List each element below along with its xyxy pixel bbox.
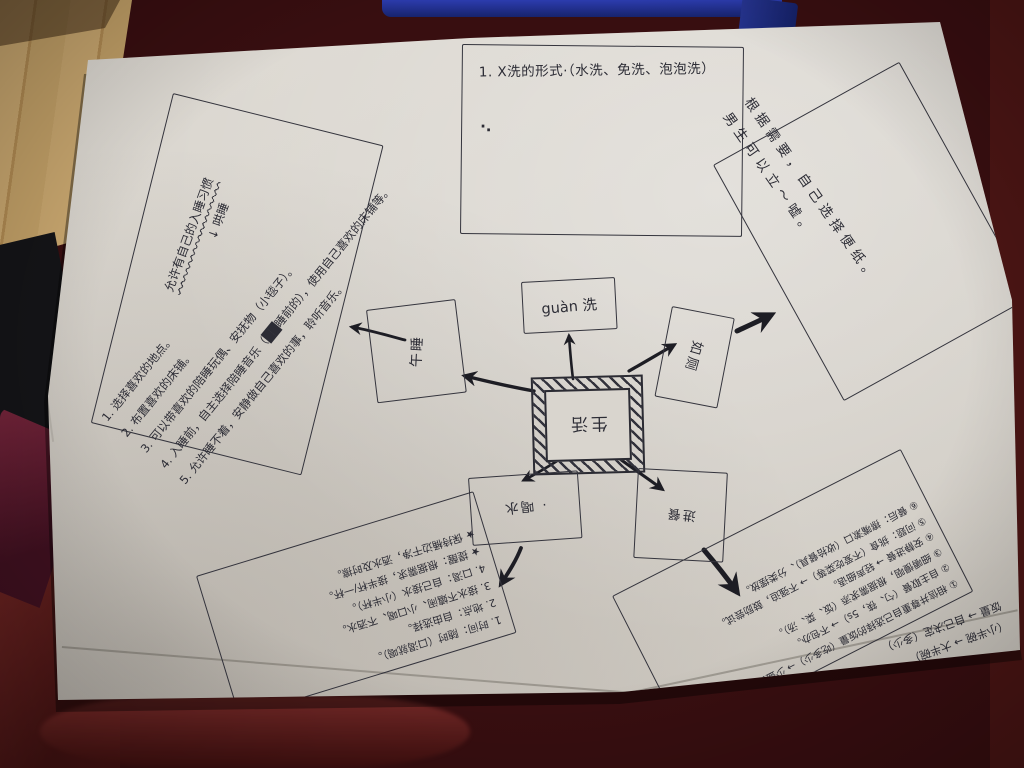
center-node-inner: 生活 <box>544 388 632 462</box>
node-guanxi: guàn 洗 <box>521 277 618 334</box>
center-node-label: 生活 <box>568 412 609 438</box>
forms-heading: 1. X洗的形式·（水洗、免洗、泡泡洗） <box>479 57 735 81</box>
blue-strap <box>382 0 782 17</box>
node-water-label: · 喝水 <box>503 496 548 520</box>
mindmap-center-node: 生活 <box>531 375 646 476</box>
node-nap-label: 午睡 <box>406 335 428 368</box>
node-guanxi-label: guàn 洗 <box>541 293 598 319</box>
arrow-toilet-to-notes <box>737 315 771 331</box>
node-meal-label: 进餐 <box>665 504 697 526</box>
forms-box: 1. X洗的形式·（水洗、免洗、泡泡洗） ·. <box>460 44 744 237</box>
node-nap: 午睡 <box>366 299 467 403</box>
arrow-center-to-nap <box>465 376 534 391</box>
forms-bullet: ·. <box>480 117 492 135</box>
paper-sheet: 1. X洗的形式·（水洗、免洗、泡泡洗） ·. 允许有自己的入睡习惯 ↓ 哄睡 … <box>0 0 1024 768</box>
photo-canvas: 1. X洗的形式·（水洗、免洗、泡泡洗） ·. 允许有自己的入睡习惯 ↓ 哄睡 … <box>0 0 1024 768</box>
arrow-center-to-guanxi <box>569 336 573 379</box>
node-toilet-label: 如厕 <box>680 339 708 376</box>
arrow-water-to-notes <box>501 548 521 584</box>
